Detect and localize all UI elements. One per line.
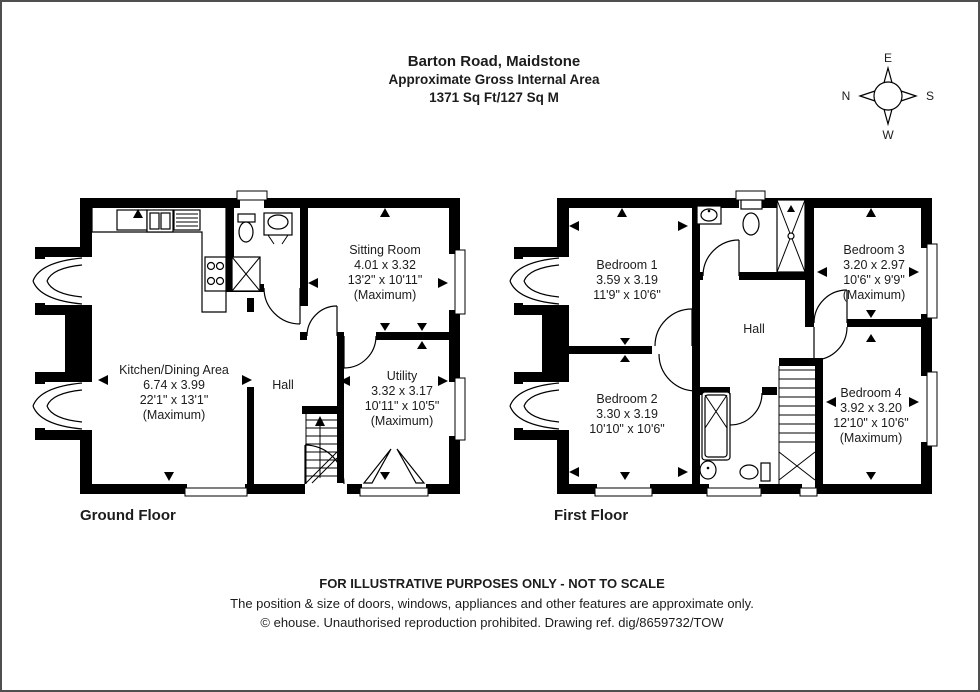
kitchen-unit: [117, 210, 147, 230]
stairs-up-arrow-icon: [315, 416, 325, 426]
kitchen-drainer: [174, 210, 200, 230]
bedroom3-metric: 3.20 x 2.97: [843, 258, 905, 272]
bedroom1-metric: 3.59 x 3.19: [596, 273, 658, 287]
toilet-icon: [740, 465, 758, 479]
footer-disclaimer: FOR ILLUSTRATIVE PURPOSES ONLY - NOT TO …: [319, 576, 665, 591]
bedroom1-name: Bedroom 1: [596, 258, 657, 272]
basin-icon: [268, 215, 288, 229]
basin-icon: [700, 461, 716, 479]
toilet-cistern: [238, 214, 255, 222]
bedroom2-imperial: 10'10" x 10'6": [589, 422, 665, 436]
compass-icon: E S W N: [842, 51, 934, 142]
compass-top: E: [884, 51, 892, 65]
page-subtitle: Approximate Gross Internal Area: [388, 72, 600, 87]
kitchen-metric: 6.74 x 3.99: [143, 378, 205, 392]
bedroom4-note: (Maximum): [840, 431, 903, 445]
ff-room-labels: Bedroom 1 3.59 x 3.19 11'9" x 10'6" Bedr…: [554, 243, 909, 524]
sitting-room-note: (Maximum): [354, 288, 417, 302]
ff-shower-room-fixtures: [697, 200, 805, 272]
compass-right: S: [926, 89, 934, 103]
compass-bottom: W: [882, 128, 894, 142]
toilet-cistern: [761, 463, 770, 481]
kitchen-hob: [205, 257, 226, 291]
bedroom2-metric: 3.30 x 3.19: [596, 407, 658, 421]
utility-metric: 3.32 x 3.17: [371, 384, 433, 398]
footer-approximate: The position & size of doors, windows, a…: [230, 596, 754, 611]
bedroom4-metric: 3.92 x 3.20: [840, 401, 902, 415]
ground-floor-plan: Sitting Room 4.01 x 3.32 13'2" x 10'11" …: [33, 191, 465, 524]
gf-hall-name: Hall: [272, 378, 294, 392]
first-floor-label: First Floor: [554, 507, 628, 524]
footer: FOR ILLUSTRATIVE PURPOSES ONLY - NOT TO …: [230, 576, 754, 630]
floorplan-page: Barton Road, Maidstone Approximate Gross…: [0, 0, 980, 692]
bedroom4-imperial: 12'10" x 10'6": [833, 416, 909, 430]
toilet-icon: [239, 222, 253, 242]
ff-hall-name: Hall: [743, 322, 765, 336]
sitting-room-name: Sitting Room: [349, 243, 421, 257]
utility-imperial: 10'11" x 10'5": [365, 399, 440, 413]
first-floor-plan: Bedroom 1 3.59 x 3.19 11'9" x 10'6" Bedr…: [510, 191, 937, 524]
utility-note: (Maximum): [371, 414, 434, 428]
kitchen-note: (Maximum): [143, 408, 206, 422]
toilet-icon: [743, 213, 759, 235]
gf-wc-fixtures: [238, 213, 292, 244]
page-title: Barton Road, Maidstone: [408, 53, 581, 70]
gf-french-doors: [364, 449, 424, 483]
bedroom4-name: Bedroom 4: [840, 386, 901, 400]
bedroom1-imperial: 11'9" x 10'6": [593, 288, 661, 302]
sitting-room-metric: 4.01 x 3.32: [354, 258, 416, 272]
title-block: Barton Road, Maidstone Approximate Gross…: [388, 53, 600, 105]
footer-copyright: © ehouse. Unauthorised reproduction proh…: [260, 615, 724, 630]
ground-floor-label: Ground Floor: [80, 507, 176, 524]
ff-window-sills: [595, 191, 937, 496]
floorplan-canvas: Barton Road, Maidstone Approximate Gross…: [2, 2, 980, 692]
toilet-cistern: [741, 200, 762, 209]
kitchen-name: Kitchen/Dining Area: [119, 363, 229, 377]
bedroom3-name: Bedroom 3: [843, 243, 904, 257]
sitting-room-imperial: 13'2" x 10'11": [348, 273, 423, 287]
kitchen-imperial: 22'1" x 13'1": [140, 393, 209, 407]
gf-kitchen-fixtures: [92, 208, 260, 312]
ff-stairs: [779, 366, 815, 484]
compass-left: N: [842, 89, 851, 103]
bedroom3-imperial: 10'6" x 9'9": [843, 273, 905, 287]
bedroom3-note: (Maximum): [843, 288, 906, 302]
bedroom2-name: Bedroom 2: [596, 392, 657, 406]
utility-name: Utility: [387, 369, 418, 383]
page-area: 1371 Sq Ft/127 Sq M: [429, 90, 559, 105]
